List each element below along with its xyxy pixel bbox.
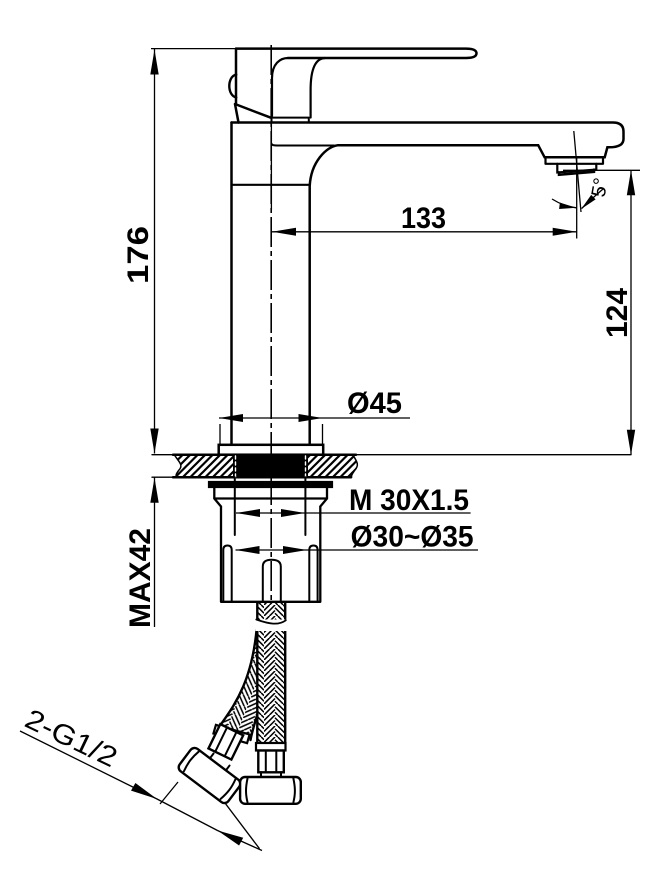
svg-text:Ø30~Ø35: Ø30~Ø35 xyxy=(351,521,474,554)
svg-text:176: 176 xyxy=(122,226,155,284)
svg-text:124: 124 xyxy=(601,288,634,338)
svg-text:MAX42: MAX42 xyxy=(124,528,157,628)
svg-text:133: 133 xyxy=(401,202,446,235)
svg-text:M 30X1.5: M 30X1.5 xyxy=(349,484,469,517)
svg-text:5°: 5° xyxy=(588,176,613,199)
svg-text:Ø45: Ø45 xyxy=(347,387,402,420)
svg-text:2-G1/2: 2-G1/2 xyxy=(20,703,122,773)
